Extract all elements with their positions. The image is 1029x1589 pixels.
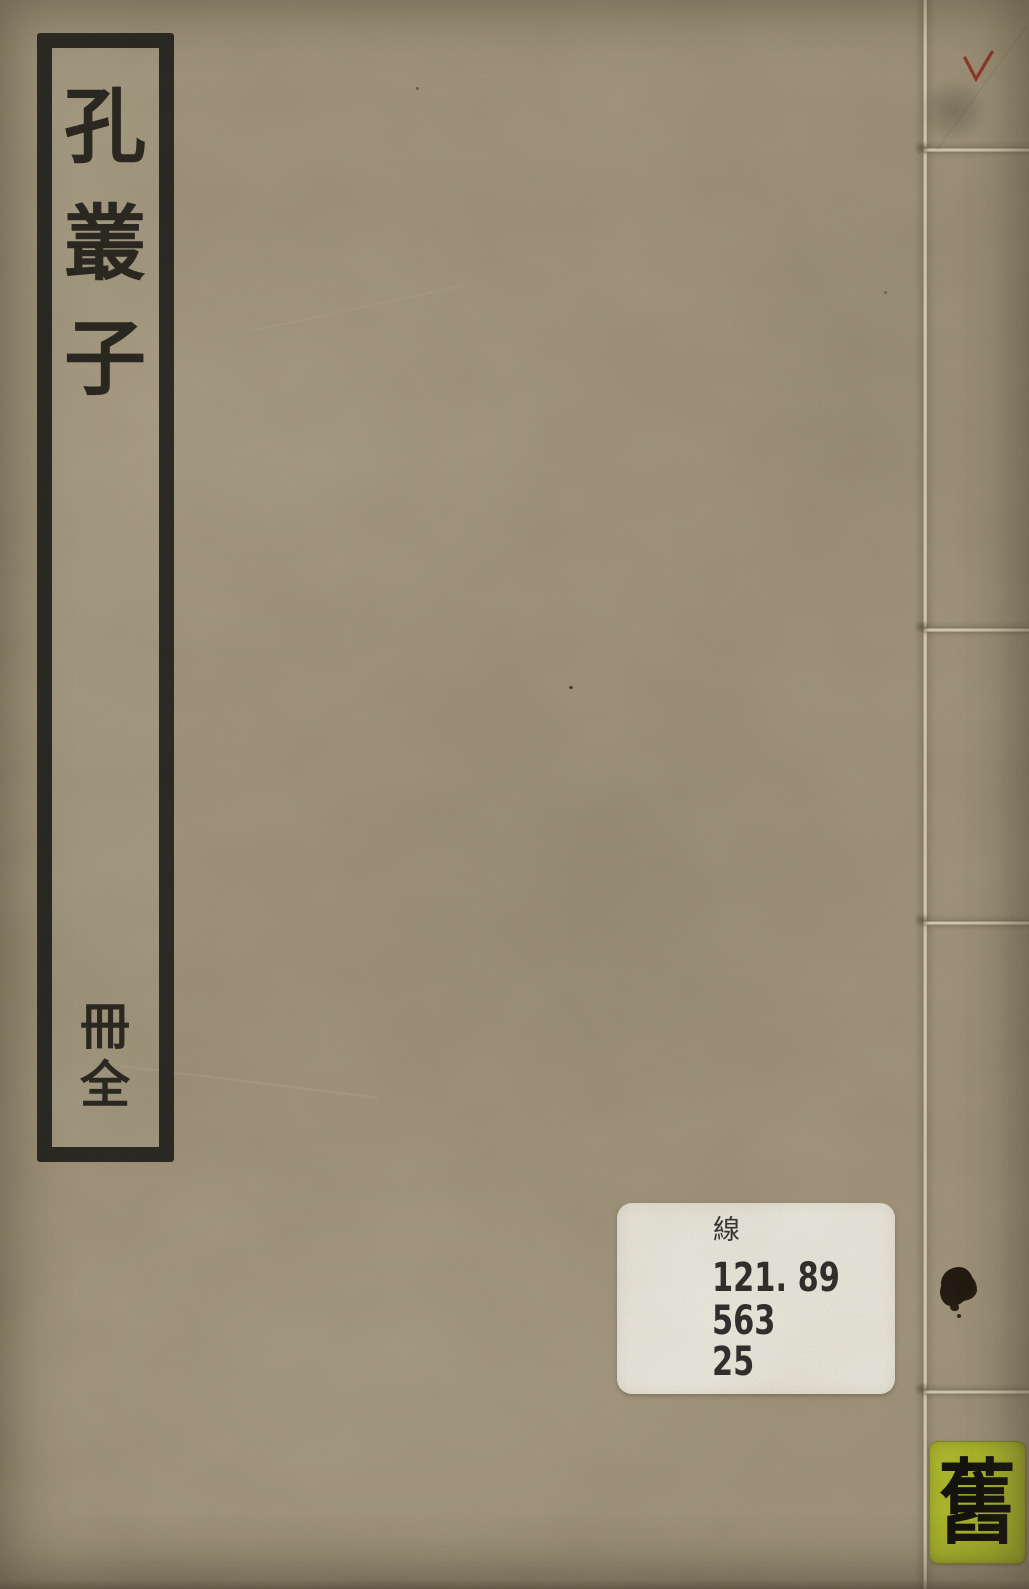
paper-crease — [936, 26, 1027, 150]
binding-thread-horizontal-2 — [924, 626, 1029, 633]
ink-splatter-dot — [957, 1314, 961, 1318]
binding-knot — [914, 913, 930, 927]
binding-knot — [914, 141, 930, 155]
call-number-line-3: 25 — [712, 1342, 754, 1382]
binding-thread-horizontal-1 — [924, 146, 1029, 153]
paper-speck — [569, 686, 573, 689]
binding-knot — [914, 1382, 930, 1396]
title-char-3: 子 — [64, 318, 146, 400]
red-check-mark-icon — [961, 49, 995, 83]
volume-char-2: 全 — [64, 1060, 146, 1110]
condition-label: 舊 — [929, 1441, 1026, 1564]
ink-splatter-dot — [950, 1303, 959, 1311]
binding-thread-vertical — [921, 0, 929, 1589]
smudge-stain — [923, 80, 985, 140]
library-call-number-label: 線 121. 89 563 25 — [617, 1203, 895, 1394]
scan-bottom-edge — [0, 1579, 1029, 1589]
binding-thread-horizontal-3 — [924, 919, 1029, 926]
paper-speck — [884, 291, 887, 294]
paper-speck — [416, 87, 419, 90]
call-number-line-1: 121. 89 — [712, 1258, 840, 1298]
condition-label-char: 舊 — [939, 1457, 1016, 1549]
title-char-2: 叢 — [64, 203, 146, 285]
volume-char-1: 冊 — [64, 1002, 146, 1052]
binding-thread-horizontal-4 — [924, 1388, 1029, 1395]
call-number-line-2: 563 — [712, 1301, 775, 1341]
ink-blot-stain — [941, 1267, 974, 1301]
call-number-category: 線 — [713, 1216, 740, 1246]
title-char-1: 孔 — [64, 86, 146, 168]
binding-knot — [914, 620, 930, 634]
book-cover-scan: 孔 叢 子 冊 全 線 121. 89 563 25 舊 — [0, 0, 1029, 1589]
paper-crease — [250, 284, 466, 332]
